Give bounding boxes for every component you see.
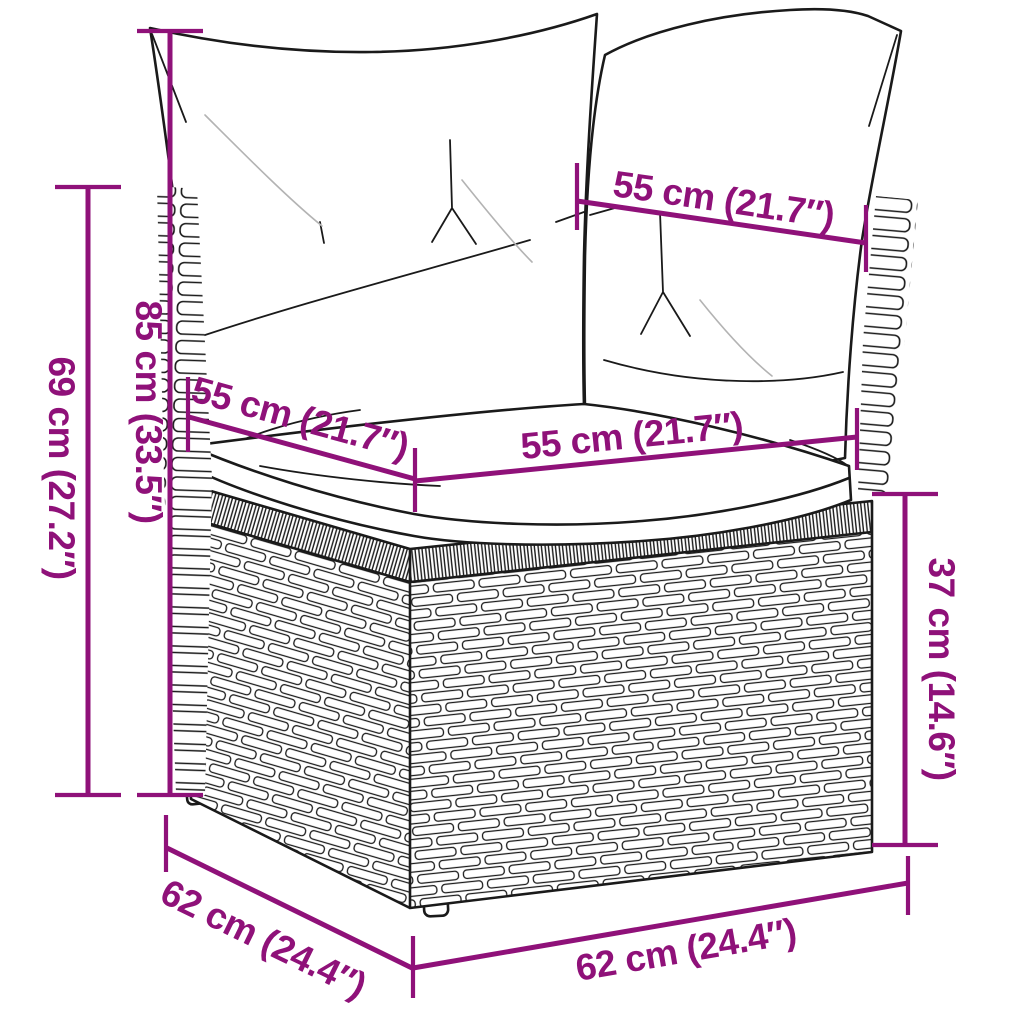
dim-label-total-back-height: 85 cm (33.5″) — [128, 300, 169, 523]
dim-label-frame-back-height: 69 cm (27.2″) — [41, 356, 82, 579]
base-left-face-weave — [180, 515, 410, 908]
base-front-face-weave — [410, 532, 872, 908]
right-back-cushion — [584, 9, 901, 466]
right-back-cushion-outline — [584, 9, 901, 466]
diagram-canvas: 85 cm (33.5″) 69 cm (27.2″) 55 cm (21.7″… — [0, 0, 1024, 1024]
dimension-diagram: 85 cm (33.5″) 69 cm (27.2″) 55 cm (21.7″… — [0, 0, 1024, 1024]
dim-frame-back-height: 69 cm (27.2″) — [41, 187, 121, 795]
sofa-base — [180, 482, 872, 917]
dim-label-base-depth: 62 cm (24.4″) — [154, 871, 372, 1006]
dim-base-height: 37 cm (14.6″) — [872, 494, 962, 845]
dim-label-base-height: 37 cm (14.6″) — [921, 557, 962, 780]
